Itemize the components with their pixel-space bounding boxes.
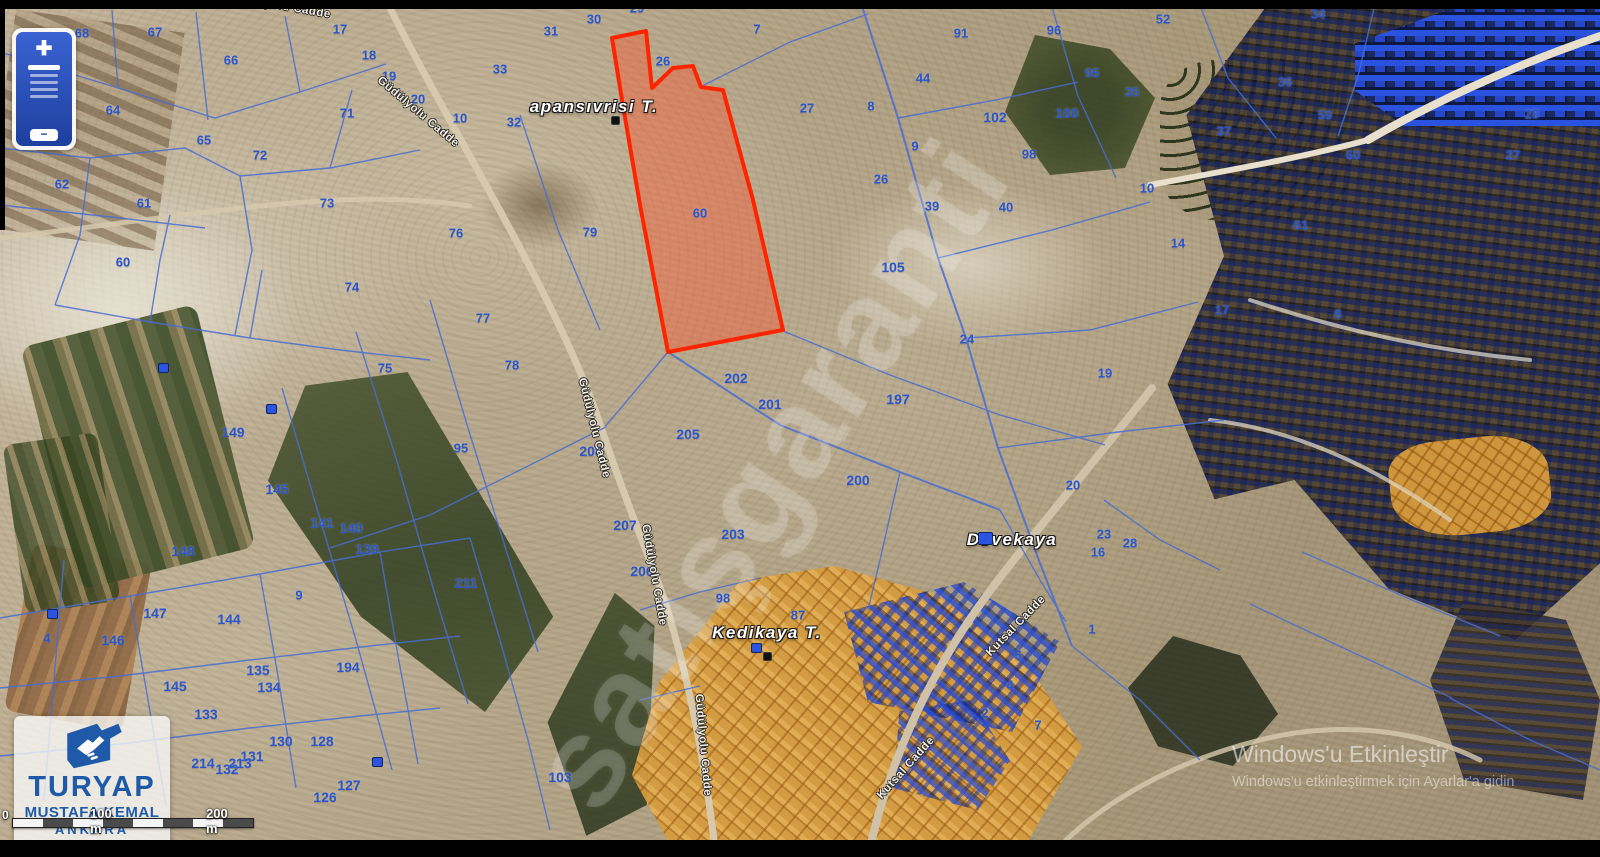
- top-black-bar: [0, 0, 1600, 9]
- poi-marker[interactable]: [266, 404, 277, 414]
- pan-control-icon[interactable]: ✚: [32, 37, 56, 61]
- map-viewport[interactable]: 6867666465626172737117181920103233313029…: [0, 0, 1600, 857]
- nav-control-body: ✚ −: [16, 32, 72, 146]
- scale-end-label: 200 m: [206, 806, 228, 836]
- place-name-label: Kedikaya T.: [712, 623, 822, 643]
- poi-marker[interactable]: [372, 757, 383, 767]
- place-label-layer: apansıvrisi T.DevekayaKedikaya T.: [0, 0, 1600, 857]
- map-navigation-control[interactable]: ✚ −: [12, 28, 76, 150]
- poi-marker[interactable]: [47, 609, 58, 619]
- poi-marker[interactable]: [751, 643, 762, 653]
- zoom-slider-handle[interactable]: [28, 65, 60, 70]
- zoom-slider[interactable]: [28, 65, 60, 98]
- bottom-black-bar: [0, 840, 1600, 857]
- hill-point-marker: [611, 116, 620, 125]
- scale-mid-label: 100 m: [90, 806, 112, 836]
- scale-zero-label: 0: [2, 808, 9, 822]
- poi-marker[interactable]: [158, 363, 169, 373]
- logo-brand-text: TURYAP: [28, 772, 156, 802]
- zoom-slider-step[interactable]: [30, 81, 58, 84]
- zoom-slider-step[interactable]: [30, 95, 58, 98]
- zoom-slider-step[interactable]: [30, 74, 58, 77]
- hill-point-marker-2: [763, 652, 772, 661]
- turyap-handshake-icon: [59, 720, 125, 772]
- devekaya-poi-marker[interactable]: [978, 532, 993, 545]
- place-name-label: apansıvrisi T.: [530, 97, 658, 117]
- left-black-bar: [0, 0, 5, 230]
- zoom-slider-step[interactable]: [30, 88, 58, 91]
- zoom-out-button[interactable]: −: [30, 129, 58, 141]
